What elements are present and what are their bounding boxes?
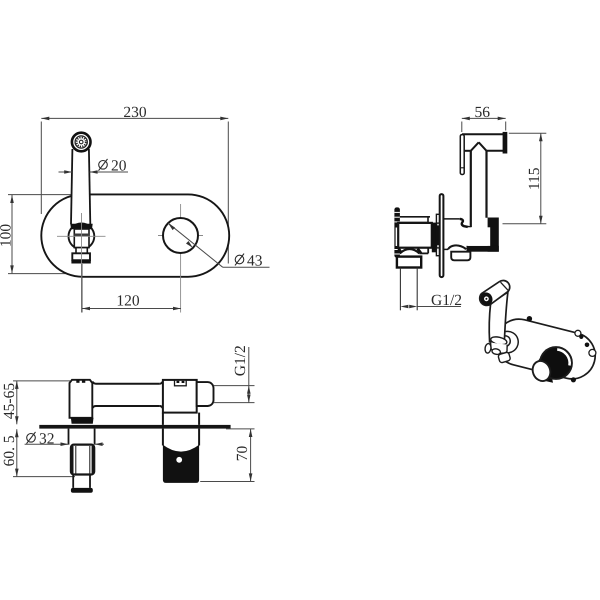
svg-text:100: 100 — [0, 224, 15, 248]
svg-text:45-65: 45-65 — [1, 383, 18, 419]
svg-text:G1/2: G1/2 — [232, 345, 249, 376]
svg-text:60. 5: 60. 5 — [1, 435, 18, 466]
svg-text:115: 115 — [526, 167, 543, 190]
svg-text:G1/2: G1/2 — [431, 292, 462, 309]
svg-text:70: 70 — [234, 446, 251, 462]
svg-text:56: 56 — [474, 104, 490, 121]
svg-text:32: 32 — [39, 431, 55, 448]
svg-text:230: 230 — [123, 104, 147, 121]
svg-text:43: 43 — [247, 253, 263, 270]
svg-text:20: 20 — [111, 158, 127, 175]
svg-text:120: 120 — [116, 293, 140, 310]
